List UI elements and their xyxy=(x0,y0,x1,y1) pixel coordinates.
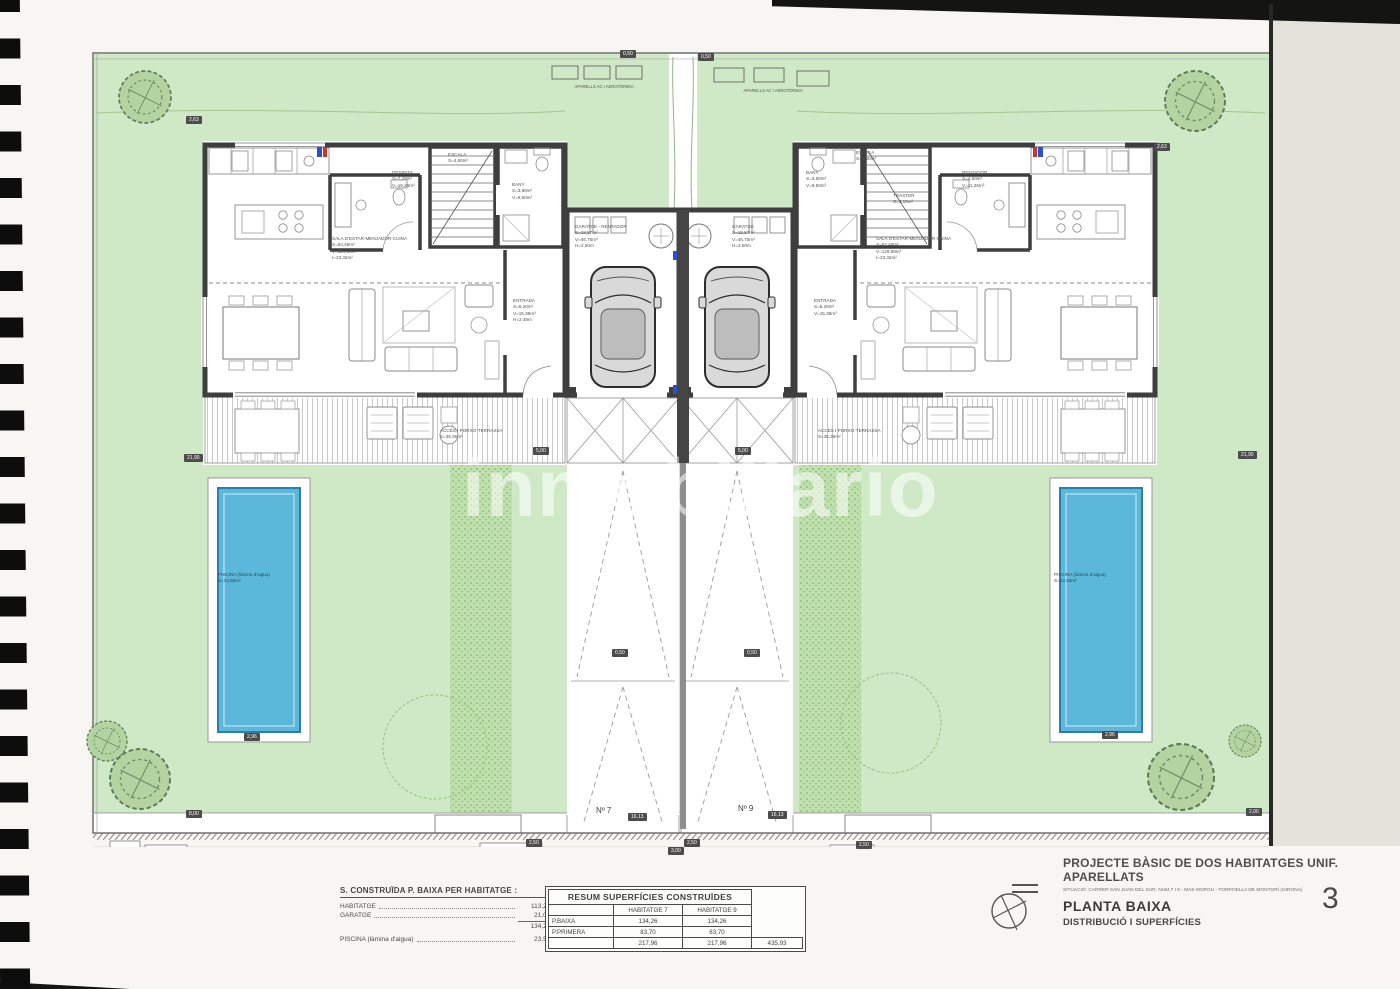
dimension-tag: 0,50 xyxy=(612,649,628,657)
dotted-leader xyxy=(379,908,515,909)
label-garage-9: GARATGE S=18,57m² V=46,75m³ H=2,50m xyxy=(732,224,798,250)
label-stairs-9: ESCALA S=4,60m² xyxy=(856,150,906,163)
dimension-tag: 8,00 xyxy=(186,810,202,818)
dimension-tag: 2,96 xyxy=(1102,731,1118,739)
summary-row-label: GARATGE xyxy=(340,912,371,919)
floor-plan-drawing xyxy=(85,35,1280,847)
summary-pool-label: PISCINA (làmina d'aigua) xyxy=(340,936,414,943)
dimension-tag: 3,00 xyxy=(668,847,684,855)
label-stairs-7: ESCALA S=4,60m² xyxy=(448,152,498,165)
areas-table: RESUM SUPERFÍCIES CONSTRUÏDES HABITATGE … xyxy=(545,886,806,952)
summary-row-label: HABITATGE xyxy=(340,903,376,910)
house-number-9: Nº 9 xyxy=(738,804,753,813)
table-row-label: P.BAIXA xyxy=(549,916,614,927)
label-porch-9: ACCÉS I PORXO-TERRASSA S=35,36m² xyxy=(818,428,930,441)
label-living-room-9: SALA D'ESTAR-MENJADOR-CUINA S=53,48m² V=… xyxy=(876,236,988,262)
label-garage-7: GARATGE - RENTADOR S=18,57m² V=46,75m³ H… xyxy=(575,224,647,250)
table-cell: 134,26 xyxy=(614,916,683,927)
north-symbol xyxy=(986,886,1032,940)
table-cell: 217,96 xyxy=(614,938,683,949)
dimension-tag: 5,00 xyxy=(735,447,751,455)
table-col-habitatge9: HABITATGE 9 xyxy=(683,905,752,916)
dimension-tag: 2,96 xyxy=(244,733,260,741)
label-laundry-9: RENTADOR S=4,50m² V=11,25m³ xyxy=(962,170,1022,189)
label-storage-9: TRASTER S=3,10m² xyxy=(893,193,945,206)
summary-subtotal-row: 134,26m² xyxy=(340,921,558,930)
label-pool-7: PISCINA (làmina d'aigua) S=23,55m² xyxy=(218,572,302,585)
table-cell: 134,26 xyxy=(683,916,752,927)
spiral-binding xyxy=(0,0,30,989)
dimension-tag: 2,63 xyxy=(186,116,202,124)
table-title: RESUM SUPERFÍCIES CONSTRUÏDES xyxy=(549,890,752,905)
label-entrance-9: ENTRADA S=6,20m² V=15,38m³ xyxy=(814,298,874,317)
table-cell: 217,96 xyxy=(683,938,752,949)
page-edge-right xyxy=(1273,6,1400,846)
ac-units-caption-left: APARELLS AC I AEROTÈRMIA xyxy=(545,84,663,89)
built-area-summary: S. CONSTRUÏDA P. BAIXA PER HABITATGE : H… xyxy=(340,886,558,945)
dimension-tag: 0,50 xyxy=(698,53,714,61)
dimension-tag: 16,13 xyxy=(768,811,787,819)
label-entrance-7: ENTRADA S=6,20m² V=15,38m³ H=2,48m xyxy=(513,298,573,324)
dimension-tag: 5,00 xyxy=(533,447,549,455)
project-title: PROJECTE BÀSIC DE DOS HABITATGES UNIF. A… xyxy=(1063,856,1363,884)
dimension-tag: 2,50 xyxy=(856,841,872,849)
summary-pool-row: PISCINA (làmina d'aigua) 23,55m² xyxy=(340,936,558,943)
dimension-tag: 0,50 xyxy=(620,50,636,58)
dimension-tag: 2,00 xyxy=(1246,808,1262,816)
summary-title: S. CONSTRUÏDA P. BAIXA PER HABITATGE : xyxy=(340,886,558,898)
table-cell: 83,70 xyxy=(614,927,683,938)
summary-row: GARATGE 21,00m² xyxy=(340,912,558,919)
sheet-title: PLANTA BAIXA xyxy=(1063,898,1363,914)
table-col-habitatge7: HABITATGE 7 xyxy=(614,905,683,916)
dotted-leader xyxy=(417,941,516,942)
label-bath-9: BANY S=3,80m² V=9,50m³ xyxy=(806,170,852,189)
dimension-tag: 0,50 xyxy=(744,649,760,657)
sheet-subtitle: DISTRIBUCIÓ I SUPERFÍCIES xyxy=(1063,917,1363,928)
dimension-tag: 2,63 xyxy=(1154,143,1170,151)
project-situation: SITUACIÓ: CARRER SAN JUAN DEL SUR, NUM.7… xyxy=(1063,888,1363,893)
table-row-label: P.PRIMERA xyxy=(549,927,614,938)
label-office-7: DESPATX S=7,29m² V=19,28m³ xyxy=(392,170,452,189)
label-living-room-7: SALA D'ESTAR-MENJADOR-CUINA S=53,48m² V=… xyxy=(332,236,444,262)
dimension-tag: 21,90 xyxy=(184,454,203,462)
summary-row: HABITATGE 113,26m² xyxy=(340,903,558,910)
label-bath-7: BANY S=3,80m² V=9,50m³ xyxy=(512,182,558,201)
dotted-leader xyxy=(374,917,515,918)
dimension-tag: 16,13 xyxy=(628,813,647,821)
table-grand-total: 435,93 xyxy=(752,938,803,949)
ac-units-caption-right: APARELLS AC I AEROTÈRMIA xyxy=(708,88,838,93)
table-row-label xyxy=(549,938,614,949)
title-block: PROJECTE BÀSIC DE DOS HABITATGES UNIF. A… xyxy=(1063,856,1363,928)
dimension-tag: 21,90 xyxy=(1238,451,1257,459)
table-cell: 83,70 xyxy=(683,927,752,938)
house-number-7: Nº 7 xyxy=(596,806,611,815)
page-fold-line xyxy=(1269,4,1273,846)
label-porch-7: ACCÉS I PORXO-TERRASSA S=35,36m² xyxy=(440,428,552,441)
label-pool-9: PISCINA (làmina d'aigua) S=23,55m² xyxy=(1054,572,1138,585)
dimension-tag: 2,50 xyxy=(526,839,542,847)
page-edge-shadow-top xyxy=(772,0,1400,24)
title-block-mark xyxy=(1012,884,1038,893)
dimension-tag: 2,50 xyxy=(684,839,700,847)
scanned-plan-sheet: inmobiliario APARELLS AC I AEROTÈRMIA AP… xyxy=(0,0,1400,989)
page-number: 3 xyxy=(1322,882,1339,916)
